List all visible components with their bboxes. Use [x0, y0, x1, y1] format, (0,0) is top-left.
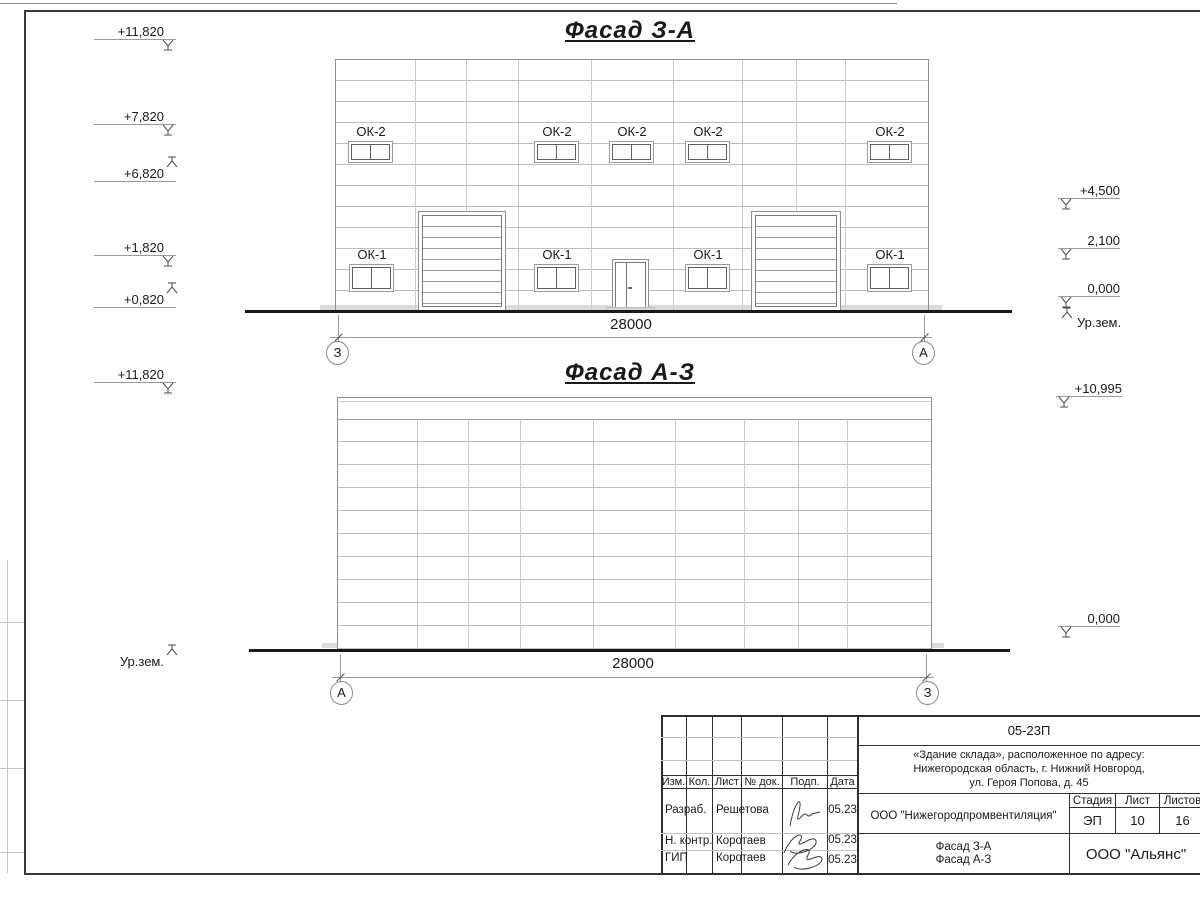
elevation-mark: 0,000: [1058, 611, 1120, 627]
window-label-ok2: ОК-2: [602, 124, 662, 139]
elevation-arrow-up-icon: [166, 155, 178, 168]
elevation-mark: +11,820: [94, 24, 176, 40]
panel-joint: [673, 60, 674, 311]
window-ok2: [685, 141, 730, 163]
axis-bubble: З: [916, 681, 939, 705]
frame-left: [24, 10, 26, 874]
project-code: 05-23П: [858, 723, 1200, 738]
window-label-ok1: ОК-1: [678, 247, 738, 262]
panel-joint: [417, 419, 418, 649]
facade1-title: Фасад З-А: [470, 17, 790, 45]
elevation-arrow-up-icon: [166, 643, 178, 656]
sheet-number: 10: [1116, 813, 1159, 828]
ground-level-label: Ур.зем.: [1077, 315, 1121, 330]
name-nkontr: Коротаев: [716, 835, 766, 847]
panel-joint: [591, 60, 592, 311]
elevation-arrow-down-icon: [1058, 396, 1070, 409]
axis-bubble: А: [912, 341, 935, 365]
drawing-sheet: Фасад З-А ОК-2 ОК-2 ОК-2 ОК-2 ОК-2 ОК-1 …: [0, 0, 1200, 900]
window-label-ok2: ОК-2: [527, 124, 587, 139]
window-ok1: [685, 264, 730, 292]
elevation-mark: +11,820: [94, 367, 176, 383]
role-razrab: Разраб.: [665, 804, 706, 816]
panel-joint: [518, 60, 519, 311]
dimension-value: 28000: [586, 316, 676, 333]
sheet-outer-edge: [0, 3, 897, 4]
window-label-ok2: ОК-2: [341, 124, 401, 139]
col-podp: Подп.: [783, 776, 827, 788]
col-kol: Кол.: [687, 776, 712, 788]
panel-joint: [675, 419, 676, 649]
window-ok2: [867, 141, 912, 163]
panel-joint: [744, 419, 745, 649]
organization: ООО "Нижегородпромвентиляция": [858, 810, 1069, 822]
facade2-title: Фасад А-З: [470, 359, 790, 387]
drawing-title-line1: Фасад З-А: [858, 841, 1069, 853]
panel-joint: [468, 419, 469, 649]
elevation-arrow-down-icon: [1060, 626, 1072, 639]
date-razrab: 05.23: [828, 804, 857, 816]
sectional-gate: [751, 211, 841, 311]
parapet-band: [338, 398, 931, 420]
dimension-line: [330, 337, 932, 338]
margin-strip-line: [0, 768, 24, 769]
company: ООО "Альянс": [1070, 846, 1200, 863]
stage-label: Стадия: [1070, 795, 1115, 807]
address-line1: «Здание склада», расположенное по адресу…: [858, 749, 1200, 761]
axis-bubble: З: [326, 341, 349, 365]
sectional-gate: [418, 211, 506, 311]
margin-strip-line: [7, 560, 8, 873]
elevation-mark: Ур.зем.: [94, 654, 176, 669]
dimension-line: [332, 677, 934, 678]
facade2-ground-line: [249, 649, 1010, 652]
window-ok2: [348, 141, 393, 163]
date-nkontr: 05.23: [828, 834, 857, 846]
role-nkontr: Н. контр.: [665, 835, 712, 847]
title-block: Изм. Кол. Лист № док. Подп. Дата Разраб.…: [661, 715, 1200, 875]
elevation-mark: +4,500: [1058, 183, 1120, 199]
elevation-arrow-up-icon: [166, 281, 178, 294]
elevation-arrow-up-icon: [1061, 306, 1073, 319]
facade1-ground-line: [245, 310, 1012, 313]
drawing-title-line2: Фасад А-З: [858, 854, 1069, 866]
window-ok1: [349, 264, 394, 292]
elevation-mark: +7,820: [94, 109, 176, 125]
window-ok2: [534, 141, 579, 163]
margin-strip-line: [0, 622, 24, 623]
window-ok1: [534, 264, 579, 292]
panel-joint: [415, 60, 416, 311]
window-label-ok2: ОК-2: [860, 124, 920, 139]
elevation-arrow-down-icon: [1060, 248, 1072, 261]
sheet-label: Лист: [1116, 795, 1159, 807]
frame-top: [24, 10, 1200, 12]
elevation-arrow-down-icon: [162, 382, 174, 395]
window-label-ok1: ОК-1: [860, 247, 920, 262]
door-handle: [628, 287, 632, 289]
panel-grid: [338, 419, 931, 649]
sheets-total: 16: [1160, 813, 1200, 828]
facade2-building: [337, 397, 932, 650]
elevation-mark: 0,000: [1058, 281, 1120, 297]
dimension-value: 28000: [588, 655, 678, 672]
col-ndok: № док.: [742, 776, 782, 788]
margin-strip-line: [0, 852, 24, 853]
panel-joint: [742, 60, 743, 311]
panel-joint: [520, 419, 521, 649]
panel-joint: [593, 419, 594, 649]
panel-joint: [845, 60, 846, 311]
elevation-mark: +0,820: [94, 292, 176, 308]
facade1-building: ОК-2 ОК-2 ОК-2 ОК-2 ОК-2 ОК-1 ОК-1 ОК-1 …: [335, 59, 929, 312]
col-list: Лист: [713, 776, 741, 788]
col-izm: Изм.: [661, 776, 686, 788]
window-label-ok1: ОК-1: [342, 247, 402, 262]
elevation-arrow-down-icon: [162, 124, 174, 137]
name-razrab: Решетова: [716, 804, 769, 816]
signature-kontr-gip: [780, 827, 830, 875]
stage-value: ЭП: [1070, 813, 1115, 828]
panel-joint: [847, 419, 848, 649]
address-line2: Нижегородская область, г. Нижний Новгоро…: [858, 763, 1200, 775]
elevation-arrow-down-icon: [1060, 198, 1072, 211]
axis-bubble: А: [330, 681, 353, 705]
elevation-mark: +1,820: [94, 240, 176, 256]
window-label-ok1: ОК-1: [527, 247, 587, 262]
role-gip: ГИП: [665, 852, 688, 864]
elevation-mark: +6,820: [94, 166, 176, 182]
sheets-label: Листов: [1160, 795, 1200, 807]
elevation-mark: 2,100: [1058, 233, 1120, 249]
window-label-ok2: ОК-2: [678, 124, 738, 139]
entrance-door: [612, 259, 649, 311]
date-gip: 05.23: [828, 854, 857, 866]
margin-strip-line: [0, 700, 24, 701]
elevation-arrow-down-icon: [162, 255, 174, 268]
window-ok2: [609, 141, 654, 163]
elevation-arrow-down-icon: [162, 39, 174, 52]
panel-joint: [798, 419, 799, 649]
name-gip: Коротаев: [716, 852, 766, 864]
elevation-mark: +10,995: [1056, 381, 1122, 397]
col-data: Дата: [828, 776, 857, 788]
address-line3: ул. Героя Попова, д. 45: [858, 777, 1200, 789]
window-ok1: [867, 264, 912, 292]
